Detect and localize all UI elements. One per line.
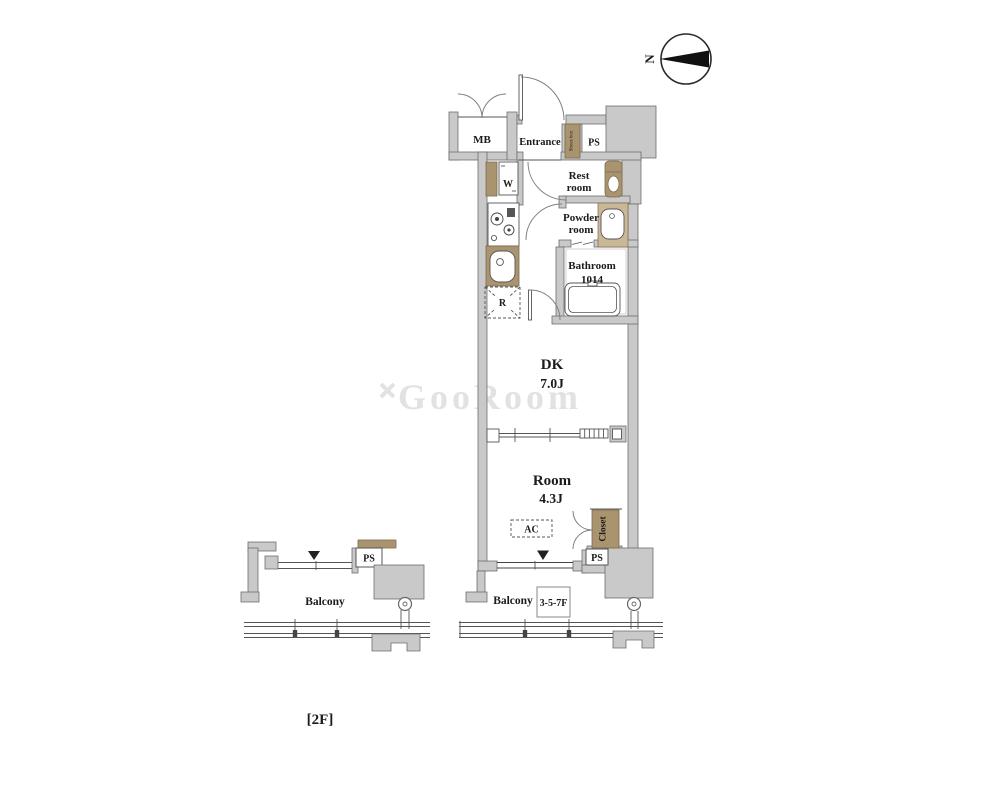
left-wall-foot bbox=[241, 592, 259, 602]
washer-label: W bbox=[503, 179, 513, 190]
storage: Closet AC bbox=[511, 510, 619, 549]
watermark-mark-icon bbox=[381, 384, 394, 397]
partition-pocket-east-inner bbox=[613, 429, 622, 439]
bath-dk-wall bbox=[552, 316, 638, 324]
mb-door-arc bbox=[458, 94, 482, 118]
compass: N bbox=[642, 34, 711, 84]
utility-cabinet bbox=[358, 540, 396, 548]
entrance-label: Entrance bbox=[519, 137, 561, 148]
floors-label: 3-5-7F bbox=[540, 598, 568, 609]
closet-door-arc bbox=[573, 511, 592, 530]
dk-label-2: 7.0J bbox=[540, 376, 564, 391]
left-balcony-section: PS Balcony bbox=[241, 540, 430, 651]
burner-center bbox=[507, 228, 510, 231]
ps-bottom: PS bbox=[586, 549, 608, 565]
window-marker-icon bbox=[308, 551, 320, 560]
ac-label: AC bbox=[524, 525, 538, 536]
floor-tag: [2F] bbox=[307, 712, 334, 728]
ps-top-label: PS bbox=[588, 138, 600, 149]
entrance-door-arc bbox=[521, 77, 564, 120]
mb-door-arc bbox=[482, 94, 506, 118]
dk-door-leaf bbox=[529, 290, 532, 320]
main-unit: Shoes box R bbox=[449, 75, 663, 648]
washer-space bbox=[486, 162, 518, 196]
washer-cabinet bbox=[486, 162, 497, 196]
entrance-shoes-divider bbox=[562, 124, 565, 152]
bath-west-wall bbox=[556, 247, 564, 320]
footing-block bbox=[613, 631, 654, 648]
ps-south-strip bbox=[582, 565, 607, 573]
restroom-label-1: Rest bbox=[569, 170, 590, 182]
northeast-block bbox=[606, 106, 656, 158]
floor-plan-page: GooRoom N PS Balcony bbox=[0, 0, 999, 801]
powder-door-arc bbox=[526, 204, 562, 240]
ps-left-label: PS bbox=[363, 554, 375, 565]
railing-post-base bbox=[523, 630, 527, 637]
powder-label-1: Powder bbox=[563, 212, 599, 224]
ps-bottom-label: PS bbox=[591, 553, 603, 564]
restroom-label-2: room bbox=[567, 182, 592, 194]
rest-powder-divider bbox=[563, 196, 630, 203]
south-window bbox=[497, 551, 573, 570]
north-wall bbox=[566, 115, 606, 124]
fridge-label: R bbox=[499, 298, 507, 309]
unit-walls bbox=[449, 106, 656, 602]
footing-block bbox=[372, 634, 420, 651]
shoes-box-label: Shoes box bbox=[570, 130, 575, 151]
structure-block bbox=[374, 565, 424, 599]
room-label-1: Room bbox=[533, 473, 572, 489]
bathroom-label-1: Bathroom bbox=[568, 260, 615, 272]
partition bbox=[487, 426, 626, 442]
partition-pocket-west bbox=[487, 429, 499, 442]
left-balcony-label: Balcony bbox=[305, 596, 345, 608]
window-stub-west bbox=[478, 561, 497, 571]
powder-west-stub bbox=[559, 196, 566, 208]
railing-post-base bbox=[335, 630, 339, 637]
room-label-2: 4.3J bbox=[539, 491, 563, 506]
bathtub-icon bbox=[565, 283, 620, 316]
powder-bath-wall-a bbox=[559, 240, 571, 247]
floor-plan-canvas: GooRoom N PS Balcony bbox=[0, 0, 999, 801]
wall-column bbox=[265, 556, 278, 569]
mb-label: MB bbox=[473, 134, 491, 146]
toilet-bowl bbox=[608, 176, 619, 192]
west-wall bbox=[478, 152, 487, 571]
closet-label: Closet bbox=[599, 516, 609, 542]
dk-door-arc bbox=[530, 290, 560, 320]
balcony-west-foot bbox=[466, 592, 487, 602]
entrance-door-leaf bbox=[519, 75, 523, 120]
dk-label-1: DK bbox=[541, 357, 564, 373]
balcony-label: Balcony bbox=[493, 595, 533, 607]
mb-east-wall bbox=[507, 112, 517, 160]
east-wall bbox=[628, 204, 638, 570]
burner-center bbox=[495, 217, 499, 221]
stove-control bbox=[507, 208, 515, 217]
drain-icon bbox=[628, 598, 641, 611]
window-marker-icon bbox=[537, 551, 549, 561]
shoes-box: Shoes box bbox=[565, 124, 580, 158]
kitchen: R bbox=[485, 203, 520, 318]
railing-post-base bbox=[567, 630, 571, 637]
bathroom-label-2: 1014 bbox=[581, 274, 604, 286]
kitchen-sink-icon bbox=[490, 251, 515, 282]
drain-icon bbox=[399, 598, 412, 611]
north-label: N bbox=[642, 54, 657, 64]
southeast-block bbox=[605, 548, 653, 598]
powder-label-2: room bbox=[569, 224, 594, 236]
bath-folding-door bbox=[572, 242, 582, 245]
bath-folding-door bbox=[583, 242, 593, 245]
restroom-door-arc bbox=[528, 162, 566, 200]
railing-post-base bbox=[293, 630, 297, 637]
